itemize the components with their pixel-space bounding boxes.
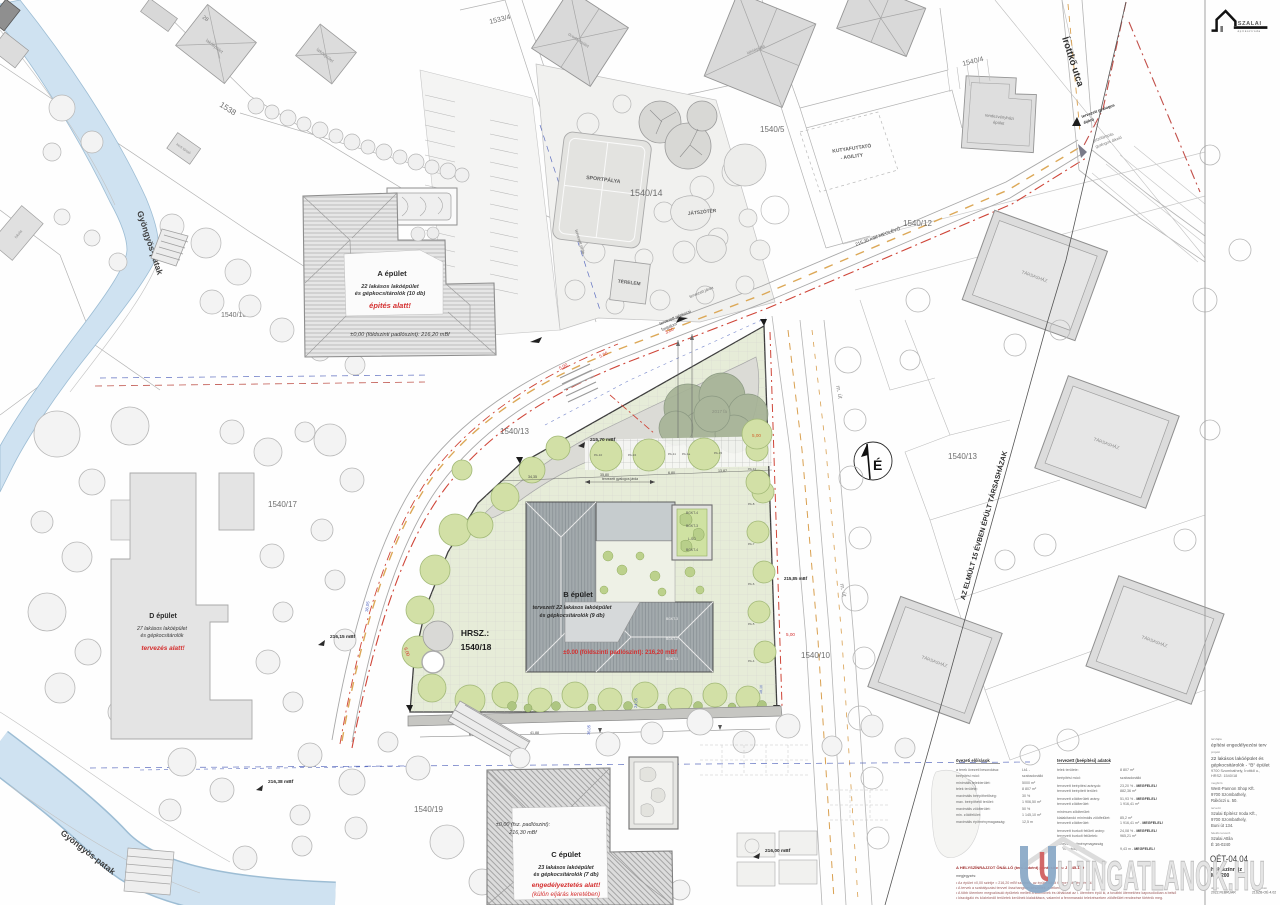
svg-text:215,70 mBf: 215,70 mBf — [590, 437, 616, 443]
svg-text:projekt: projekt — [1211, 750, 1220, 754]
svg-text:PA-12: PA-12 — [748, 467, 756, 471]
svg-text:215,85 mBf: 215,85 mBf — [784, 576, 808, 581]
svg-text:23 lakásos lakóépület: 23 lakásos lakóépület — [537, 865, 594, 871]
svg-text:Lk1 -: Lk1 - — [1022, 768, 1031, 772]
svg-text:BGKT-3: BGKT-3 — [666, 617, 678, 621]
svg-text:É: É — [873, 457, 882, 473]
svg-text:1 145,10 m²: 1 145,10 m² — [1022, 813, 1042, 817]
svg-text:maximális zöldterület:: maximális zöldterület: — [956, 807, 991, 811]
svg-text:216,15 mBf: 216,15 mBf — [330, 634, 356, 640]
svg-text:megbízó: megbízó — [1211, 781, 1223, 785]
svg-text:1540/10: 1540/10 — [801, 651, 830, 660]
svg-text:és gépkocsitárolók (9 db): és gépkocsitárolók (9 db) — [539, 613, 604, 619]
svg-text:és gépkocsitárolók (7 db): és gépkocsitárolók (7 db) — [533, 872, 598, 878]
svg-text:• A tervek a szabályozási terv: • A tervek a szabályozási tervvel összha… — [956, 886, 1070, 890]
svg-text:13,87: 13,87 — [718, 469, 727, 473]
svg-text:kialakítandó minimális zöldfel: kialakítandó minimális zöldfelület: — [1057, 816, 1110, 820]
svg-text:882,36 m²: 882,36 m² — [1120, 789, 1137, 793]
svg-text:SZALAI: SZALAI — [1238, 21, 1262, 27]
svg-text:PA-10: PA-10 — [594, 453, 602, 457]
svg-text:tervező: tervező — [1211, 806, 1221, 810]
svg-text:1540/13: 1540/13 — [500, 427, 529, 436]
svg-text:PA-15: PA-15 — [714, 451, 722, 455]
svg-text:12,5 m: 12,5 m — [1022, 820, 1033, 824]
svg-text:9700 Szombathely, Írottkő u.,: 9700 Szombathely, Írottkő u., — [1211, 769, 1260, 773]
svg-text:BGKT-3: BGKT-3 — [686, 524, 698, 528]
svg-text:1540/13: 1540/13 — [948, 452, 977, 461]
svg-text:1540/14: 1540/14 — [630, 188, 663, 198]
svg-text:PA-6: PA-6 — [748, 582, 755, 586]
svg-text:és gépkocsitárolók: és gépkocsitárolók — [141, 633, 184, 639]
svg-text:6,80: 6,80 — [668, 471, 675, 475]
svg-text:BGKT-4: BGKT-4 — [686, 511, 698, 515]
svg-text:beépítési mód:: beépítési mód: — [1057, 776, 1081, 780]
svg-text:tervezés alatt!: tervezés alatt! — [141, 645, 185, 652]
svg-text:engedélyeztetés alatt!: engedélyeztetés alatt! — [532, 882, 601, 889]
svg-text:övezeti előírások: övezeti előírások — [956, 758, 990, 763]
svg-text:8 807 m²: 8 807 m² — [1120, 768, 1135, 772]
svg-text:41,88: 41,88 — [530, 731, 539, 735]
svg-text:C épület: C épület — [551, 850, 581, 859]
svg-text:9700 Szombathely,: 9700 Szombathely, — [1211, 817, 1247, 822]
svg-text:±0.00 (földszinti padlószint):: ±0.00 (földszinti padlószint): 216,20 mB… — [563, 650, 678, 656]
svg-text:minimális telekterület:: minimális telekterület: — [956, 781, 991, 785]
svg-text:megjegyzés:: megjegyzés: — [956, 874, 976, 878]
svg-text:23,20 % - MEGFELEL!: 23,20 % - MEGFELEL! — [1120, 784, 1157, 788]
svg-text:PA-34: PA-34 — [628, 453, 636, 457]
svg-text:BGKT-1: BGKT-1 — [666, 657, 678, 661]
svg-text:85,2 m²: 85,2 m² — [1120, 816, 1133, 820]
svg-text:±0,00 (földszinti padlószint):: ±0,00 (földszinti padlószint): 216,20 mB… — [350, 332, 451, 338]
svg-text:telek területe:: telek területe: — [1057, 768, 1079, 772]
svg-text:PA-5: PA-5 — [748, 622, 755, 626]
svg-text:51,93 % - MEGFELEL!: 51,93 % - MEGFELEL! — [1120, 797, 1157, 801]
svg-text:Buni út 134.: Buni út 134. — [1211, 823, 1233, 828]
svg-text:É 16-0240: É 16-0240 — [1211, 842, 1231, 847]
svg-text:24,05: 24,05 — [633, 697, 638, 708]
svg-text:telek területe:: telek területe: — [956, 787, 978, 791]
svg-text:±0,00 (fsz. padlószint):: ±0,00 (fsz. padlószint): — [496, 822, 551, 828]
svg-text:18,10: 18,10 — [759, 685, 763, 694]
svg-text:1540/5: 1540/5 — [760, 125, 785, 134]
svg-text:1 916,41 m² - MEGFELEL!: 1 916,41 m² - MEGFELEL! — [1120, 821, 1163, 825]
svg-text:tervezett 22 lakásos lakóépüle: tervezett 22 lakásos lakóépület — [532, 605, 611, 611]
svg-text:tervezett zöldterületi arány:: tervezett zöldterületi arány: — [1057, 797, 1100, 801]
svg-text:építésziroda: építésziroda — [1238, 29, 1261, 33]
svg-text:24,08 % - MEGFELEL!: 24,08 % - MEGFELEL! — [1120, 829, 1157, 833]
svg-text:965,21 m²: 965,21 m² — [1120, 834, 1137, 838]
svg-text:216,30 mBf: 216,30 mBf — [508, 830, 537, 836]
svg-text:5,00: 5,00 — [752, 433, 761, 438]
svg-text:tervezett zöldterület:: tervezett zöldterület: — [1057, 821, 1089, 825]
svg-text:tervezett gyalogos járda: tervezett gyalogos járda — [602, 477, 638, 481]
svg-text:Rákóczi u. 50.: Rákóczi u. 50. — [1211, 798, 1238, 803]
svg-text:B épület: B épület — [563, 590, 593, 599]
svg-text:HRSZ.:: HRSZ.: — [461, 628, 490, 638]
svg-text:tervfajta: tervfajta — [1211, 737, 1222, 741]
svg-text:A épület: A épület — [377, 269, 407, 278]
svg-text:D épület: D épület — [149, 613, 177, 620]
svg-text:L-SÓ: L-SÓ — [688, 536, 696, 541]
svg-text:22 lakásos lakóépület és: 22 lakásos lakóépület és — [1211, 756, 1264, 762]
svg-text:35,80: 35,80 — [600, 473, 609, 477]
svg-text:tervezett beépített terület:: tervezett beépített terület: — [1057, 789, 1098, 793]
svg-text:27 lakásos lakóépület: 27 lakásos lakóépület — [136, 626, 187, 632]
svg-text:PA-4: PA-4 — [748, 659, 755, 663]
svg-text:34,35: 34,35 — [528, 475, 537, 479]
svg-text:tervezett burkolt felületi ará: tervezett burkolt felületi arány: — [1057, 829, 1105, 833]
svg-text:8 807 m²: 8 807 m² — [1022, 787, 1037, 791]
svg-text:minimum zöldterület:: minimum zöldterület: — [1057, 810, 1090, 814]
svg-text:(külön eljárás keretében): (külön eljárás keretében) — [532, 891, 600, 898]
svg-text:beépítési mód:: beépítési mód: — [956, 774, 980, 778]
svg-text:építési engedélyezési terv: építési engedélyezési terv — [1211, 743, 1267, 749]
svg-text:max. beépíthető terület:: max. beépíthető terület: — [956, 800, 994, 804]
svg-text:5,00: 5,00 — [786, 632, 795, 637]
svg-text:1 906,50 m²: 1 906,50 m² — [1022, 800, 1042, 804]
svg-text:a terek övezeti besorolása:: a terek övezeti besorolása: — [956, 768, 999, 772]
svg-text:tervezett (beépítési) adatok: tervezett (beépítési) adatok — [1057, 758, 1112, 763]
svg-text:és gépkocsitárolók (10 db): és gépkocsitárolók (10 db) — [355, 291, 426, 297]
svg-text:1 916,41 m²: 1 916,41 m² — [1120, 802, 1140, 806]
svg-text:50 %: 50 % — [1022, 807, 1031, 811]
svg-text:maximális beépíthetőség:: maximális beépíthetőség: — [956, 794, 997, 798]
svg-text:216,38 mBf: 216,38 mBf — [268, 779, 294, 785]
svg-text:épités alatt!: épités alatt! — [369, 301, 411, 310]
svg-text:PA-8: PA-8 — [748, 502, 755, 506]
svg-text:9,43 m - MEGFELEL!: 9,43 m - MEGFELEL! — [1120, 847, 1155, 851]
svg-text:PA-7: PA-7 — [748, 542, 755, 546]
svg-text:9700 Szombathely,: 9700 Szombathely, — [1211, 792, 1247, 797]
svg-text:Szalai Építész Iroda Kft.,: Szalai Építész Iroda Kft., — [1211, 811, 1257, 816]
svg-text:2017 fa: 2017 fa — [712, 409, 728, 414]
svg-text:1540/18: 1540/18 — [461, 642, 492, 652]
svg-text:tervezett zöldterület:: tervezett zöldterület: — [1057, 802, 1089, 806]
svg-text:22 lakásos lakóépület: 22 lakásos lakóépület — [360, 284, 420, 290]
svg-text:felelős tervező: felelős tervező — [1211, 831, 1231, 835]
svg-text:UJINGATLANOK.HU: UJINGATLANOK.HU — [1057, 852, 1265, 899]
svg-text:1540/12: 1540/12 — [903, 219, 932, 228]
svg-text:szabadonálló: szabadonálló — [1022, 774, 1043, 778]
svg-text:Szalai Attila: Szalai Attila — [1211, 836, 1233, 841]
svg-text:gépkocsitárolók - "B" épület: gépkocsitárolók - "B" épület — [1211, 763, 1270, 769]
svg-text:PA-1a: PA-1a — [682, 452, 690, 456]
svg-text:PA-11: PA-11 — [668, 452, 676, 456]
svg-text:tervezett beépítési arányok:: tervezett beépítési arányok: — [1057, 784, 1101, 788]
svg-text:BGKT-2: BGKT-2 — [666, 637, 678, 641]
svg-text:BGKT-4: BGKT-4 — [686, 548, 698, 552]
svg-text:36,05: 36,05 — [586, 724, 591, 735]
svg-text:1540/17: 1540/17 — [268, 500, 297, 509]
svg-text:szabadonálló: szabadonálló — [1120, 776, 1141, 780]
svg-text:HRSZ: 1540/18: HRSZ: 1540/18 — [1211, 774, 1237, 778]
svg-text:30 %: 30 % — [1022, 794, 1031, 798]
svg-text:5000 m²: 5000 m² — [1022, 781, 1036, 785]
svg-text:1540/19: 1540/19 — [414, 805, 443, 814]
svg-text:West-Pannon Shop Kft.: West-Pannon Shop Kft. — [1211, 786, 1255, 791]
svg-text:maximális építménymagasság:: maximális építménymagasság: — [956, 820, 1005, 824]
svg-text:216,00 mBf: 216,00 mBf — [765, 848, 791, 854]
svg-text:min. zöldfelület:: min. zöldfelület: — [956, 813, 981, 817]
